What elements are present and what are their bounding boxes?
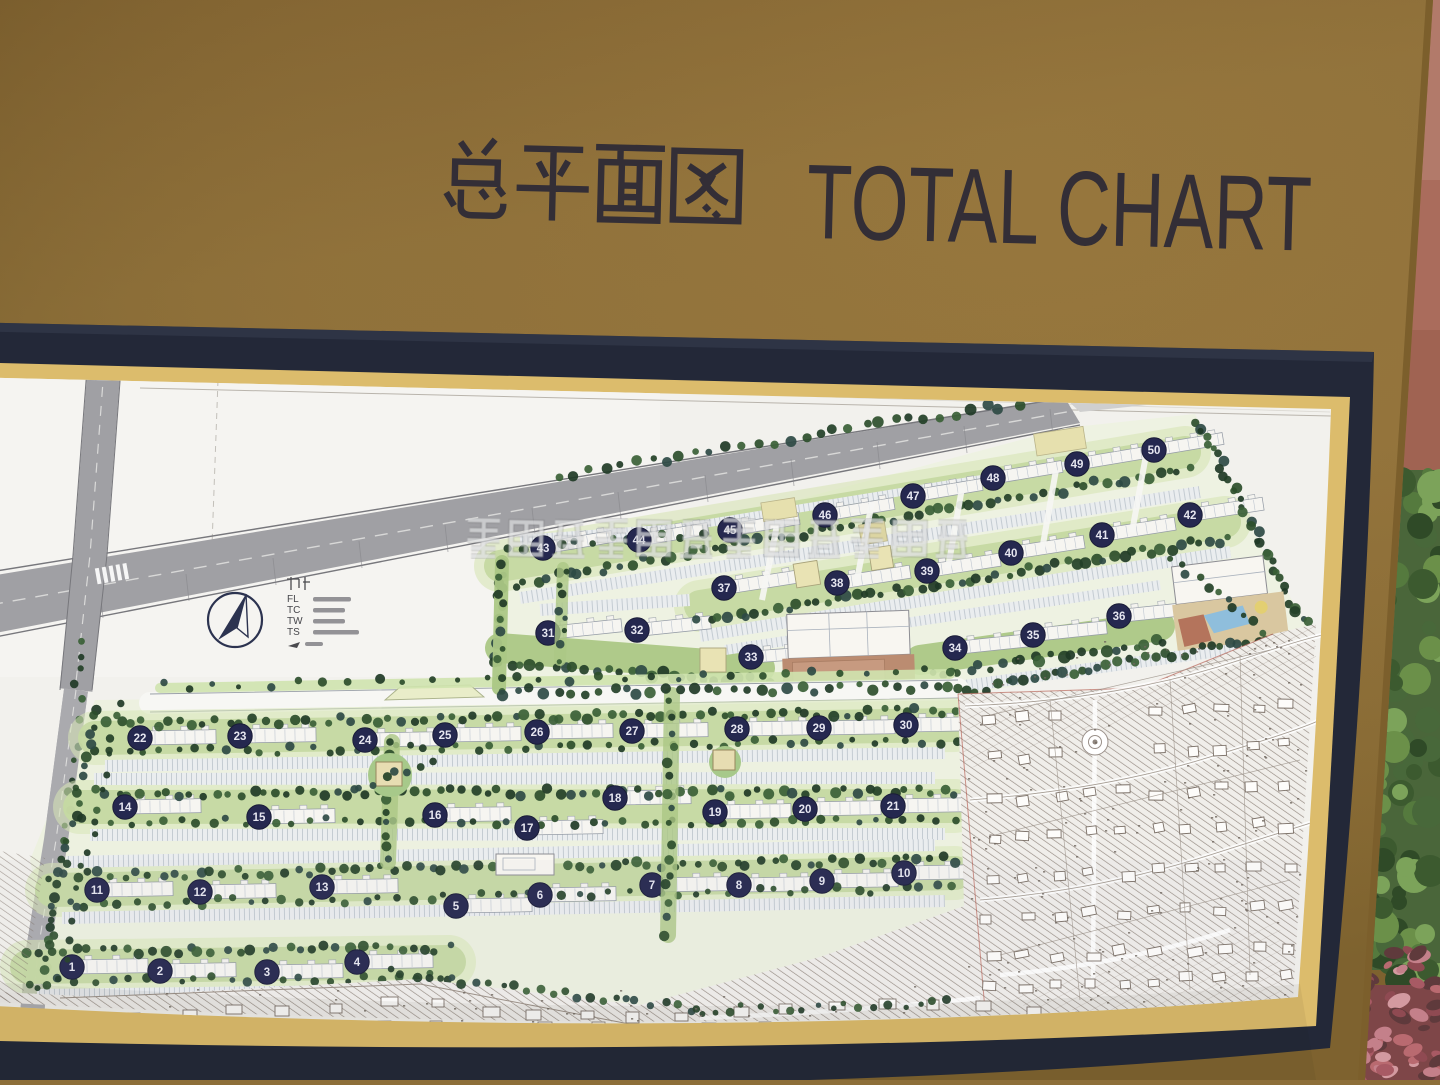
- svg-text:30: 30: [900, 720, 913, 732]
- svg-text:25: 25: [439, 730, 452, 742]
- svg-text:49: 49: [1071, 459, 1084, 471]
- svg-text:26: 26: [531, 727, 544, 739]
- svg-text:37: 37: [718, 583, 731, 595]
- svg-text:28: 28: [731, 724, 744, 736]
- svg-text:16: 16: [429, 810, 442, 822]
- svg-text:FL: FL: [287, 594, 299, 605]
- svg-text:48: 48: [987, 473, 1000, 485]
- svg-text:39: 39: [921, 566, 934, 578]
- svg-text:33: 33: [745, 652, 758, 664]
- svg-text:TOTAL CHART: TOTAL CHART: [805, 143, 1313, 274]
- svg-text:21: 21: [887, 801, 900, 813]
- svg-text:TC: TC: [287, 605, 300, 616]
- svg-text:41: 41: [1096, 530, 1109, 542]
- svg-text:15: 15: [253, 812, 266, 824]
- svg-text:31: 31: [542, 628, 555, 640]
- svg-text:32: 32: [631, 625, 644, 637]
- svg-text:18: 18: [609, 793, 622, 805]
- svg-text:19: 19: [709, 807, 722, 819]
- svg-text:24: 24: [359, 735, 372, 747]
- svg-text:17: 17: [521, 823, 534, 835]
- svg-text:47: 47: [907, 491, 920, 503]
- svg-text:35: 35: [1027, 630, 1040, 642]
- svg-text:22: 22: [134, 733, 147, 745]
- svg-text:36: 36: [1113, 611, 1126, 623]
- svg-text:34: 34: [949, 643, 962, 655]
- svg-text:20: 20: [799, 804, 812, 816]
- svg-text:TS: TS: [287, 627, 300, 638]
- svg-text:50: 50: [1148, 445, 1161, 457]
- svg-text:23: 23: [234, 731, 247, 743]
- svg-text:14: 14: [119, 802, 132, 814]
- svg-text:29: 29: [813, 723, 826, 735]
- svg-text:42: 42: [1184, 510, 1197, 522]
- svg-text:38: 38: [831, 578, 844, 590]
- svg-text:27: 27: [626, 726, 639, 738]
- svg-text:40: 40: [1005, 548, 1018, 560]
- svg-text:TW: TW: [287, 616, 303, 627]
